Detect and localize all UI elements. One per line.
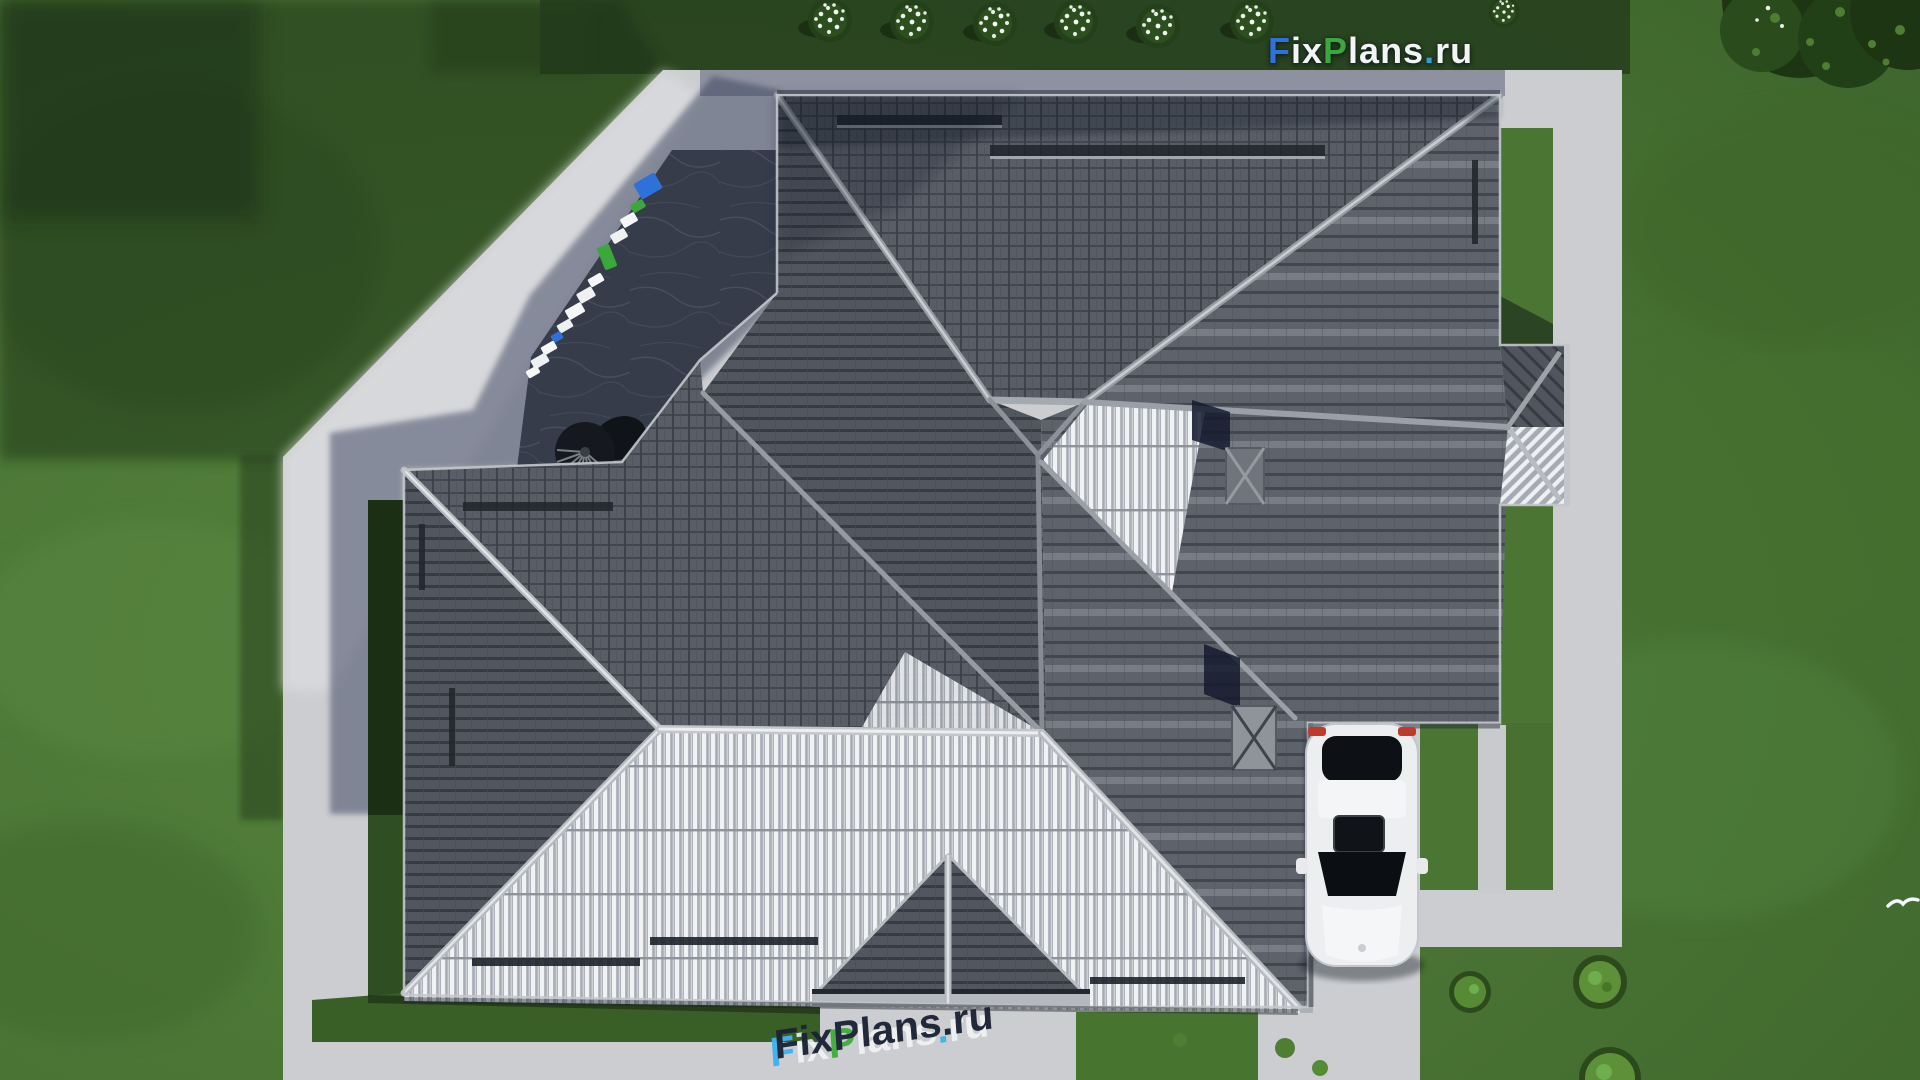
ground-mark-part: ru (951, 991, 995, 1043)
car-taillight-left (1308, 727, 1326, 736)
white-car (1296, 724, 1428, 981)
logo-part: ru (1435, 30, 1473, 71)
logo-part: F (1268, 30, 1291, 71)
car-mirror-right (1416, 858, 1428, 874)
side-door-path (1478, 723, 1506, 893)
logo-part: ix (1291, 30, 1323, 71)
logo-part: P (1323, 30, 1348, 71)
car-taillight-right (1398, 727, 1416, 736)
logo-part: lans (1348, 30, 1424, 71)
fixplans-logo: FixPlans.ru (1268, 30, 1473, 72)
car-windshield (1318, 852, 1406, 896)
logo-part: . (1424, 30, 1435, 71)
car-rear-window (1322, 736, 1402, 782)
scene-canvas (0, 0, 1920, 1080)
ground-mark-part: F (773, 1019, 801, 1068)
ground-mark-part: P (831, 1010, 861, 1060)
ground-mark-part: ix (798, 1014, 835, 1065)
car-sunroof (1334, 816, 1384, 852)
car-mirror-left (1296, 858, 1308, 874)
render-stage: FixPlans.ru FixPlans.ru (0, 0, 1920, 1080)
